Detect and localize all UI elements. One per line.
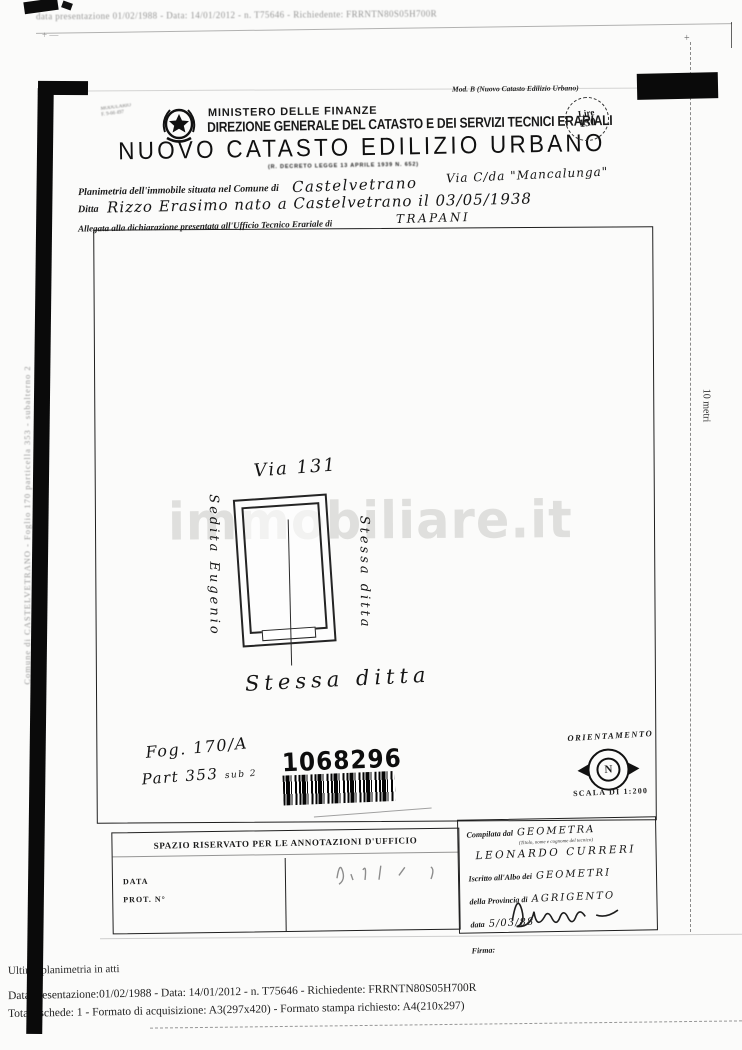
compass-west-arrow-icon (577, 764, 588, 776)
compiler-signature (503, 879, 635, 933)
scan-top-cutoff-text: data presentazione 01/02/1988 - Data: 14… (36, 9, 437, 22)
annotations-handwriting-squiggle (323, 847, 454, 894)
compiler-name: LEONARDO CURRERI (475, 842, 652, 862)
particella-label: Part 353 sub 2 (141, 762, 258, 789)
iscritto-value: GEOMETRI (536, 867, 612, 881)
scan-corner-blotch-2 (61, 1, 73, 11)
compass-north-letter: N (604, 763, 612, 775)
footer-stray-rule (150, 1020, 742, 1028)
foglio-label: Fog. 170/A (145, 733, 249, 761)
annotations-column-divider (285, 858, 287, 931)
footer-line2: Data presentazione:01/02/1988 - Data: 14… (8, 982, 476, 1002)
annotations-prot-label: PROT. N° (123, 895, 166, 905)
decreto-subtitle: (R. DECRETO LEGGE 13 APRILE 1939 N. 652) (268, 162, 419, 171)
right-margin-scale-label: 10 metri (701, 371, 712, 441)
fold-cross-mark: + (684, 33, 690, 44)
form-line2-label: Ditta (78, 204, 99, 215)
building-outline (233, 494, 337, 648)
plan-frame: immobiliare.it Via 131 Sedita Eugenio St… (93, 226, 657, 823)
form-line3-value: TRAPANI (396, 210, 470, 226)
scan-top-rule (36, 23, 732, 34)
compiler-box: Compilata dal GEOMETRA (Titolo, nome e c… (457, 816, 658, 933)
firma-label: Firma: (471, 945, 495, 955)
annotations-data-label: DATA (123, 877, 149, 886)
bottom-neighbor-label: Stessa ditta (244, 663, 431, 696)
fold-dashed-line (690, 42, 691, 932)
orientamento-label: ORIENTAMENTO (555, 727, 665, 743)
subalterno-value: sub 2 (225, 769, 258, 781)
scan-black-bar-top-right (637, 72, 719, 100)
mod-b-label: Mod. B (Nuovo Catasto Edilizio Urbano) (452, 83, 579, 93)
modulario-block: MODULARIO F. 9-66 497 (100, 103, 132, 119)
building-entrance-notch (262, 627, 317, 642)
left-neighbor-label: Sedita Eugenio (206, 488, 222, 643)
scanned-cadastral-document: data presentazione 01/02/1988 - Data: 14… (0, 0, 742, 1050)
footer-line1: Ultima planimetria in atti (8, 963, 120, 977)
right-neighbor-label: Stessa ditta (356, 507, 372, 639)
scan-corner-marks: + — (42, 30, 58, 40)
lire-stamp-amount: 150 (579, 117, 597, 130)
scan-top-rule-hook (731, 22, 732, 48)
compilata-value: GEOMETRA (517, 824, 596, 838)
barcode-stray-line (314, 808, 432, 818)
scala-label: SCALA DI 1:200 (555, 785, 665, 799)
compiler-data-label: data (470, 920, 485, 930)
scan-black-bar-left-top-stub (38, 81, 88, 95)
iscritto-label: Iscritto all'Albo dei (468, 872, 532, 884)
form-via-value: Via C/da "Mancalunga" (446, 164, 609, 185)
via-131-label: Via 131 (253, 454, 338, 481)
compass-east-arrow-icon (628, 762, 639, 774)
barcode: 1068296 (281, 745, 397, 806)
compilata-label: Compilata dal (466, 829, 513, 840)
footer-line3: Totale schede: 1 - Formato di acquisizio… (8, 1000, 465, 1020)
particella-value: Part 353 (141, 765, 219, 789)
building-inner-wall (241, 502, 327, 634)
annotations-box: SPAZIO RISERVATO PER LE ANNOTAZIONI D'UF… (111, 828, 460, 935)
barcode-number: 1068296 (281, 745, 402, 779)
